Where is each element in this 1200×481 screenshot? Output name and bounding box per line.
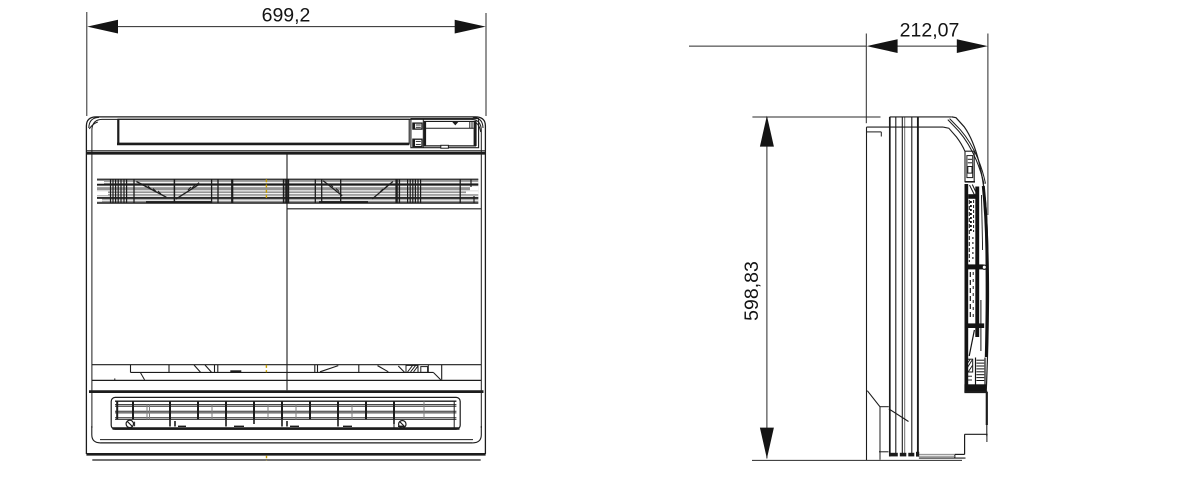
svg-text:699,2: 699,2 <box>262 4 311 26</box>
svg-text:598,83: 598,83 <box>741 261 763 321</box>
svg-text:212,07: 212,07 <box>900 20 960 42</box>
